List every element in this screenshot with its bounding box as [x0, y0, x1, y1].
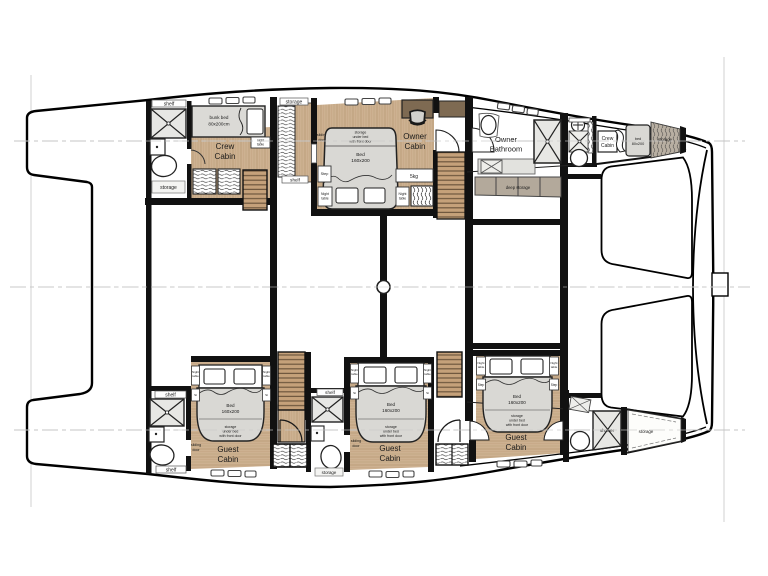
svg-text:Guest: Guest: [505, 433, 527, 442]
svg-text:Guest: Guest: [217, 445, 239, 454]
svg-text:table: table: [399, 197, 406, 201]
svg-text:Cabin: Cabin: [506, 443, 527, 452]
svg-text:shelf: shelf: [165, 393, 176, 399]
svg-text:door: door: [192, 448, 200, 452]
svg-text:Cabin: Cabin: [405, 142, 426, 151]
svg-text:Crew: Crew: [216, 142, 235, 151]
svg-text:Bathroom: Bathroom: [490, 145, 523, 154]
svg-text:160x200: 160x200: [508, 400, 526, 405]
svg-text:bunk bed: bunk bed: [210, 115, 229, 120]
svg-text:St: St: [426, 391, 429, 395]
svg-text:storage: storage: [322, 470, 337, 475]
svg-text:table: table: [192, 374, 199, 378]
svg-text:under bed: under bed: [509, 419, 525, 423]
svg-text:St: St: [194, 393, 197, 397]
svg-text:Bed: Bed: [513, 394, 522, 399]
svg-text:with front door: with front door: [219, 434, 242, 438]
svg-text:table: table: [263, 374, 270, 378]
svg-text:Step: Step: [551, 383, 558, 387]
svg-text:shelf: shelf: [166, 468, 177, 474]
svg-text:bed: bed: [635, 137, 641, 141]
svg-text:table: table: [478, 365, 485, 369]
svg-text:storage: storage: [160, 185, 177, 191]
svg-text:shelf: shelf: [290, 178, 300, 183]
svg-text:sliding: sliding: [351, 439, 361, 443]
svg-text:St: St: [265, 393, 268, 397]
svg-text:shelf: shelf: [325, 390, 335, 395]
svg-text:80x200: 80x200: [632, 142, 644, 146]
svg-text:Cabin: Cabin: [601, 143, 614, 149]
svg-text:sliding: sliding: [191, 443, 201, 447]
svg-text:Bed: Bed: [387, 402, 396, 407]
svg-text:St: St: [353, 391, 356, 395]
svg-text:80x200cm: 80x200cm: [208, 122, 229, 127]
svg-text:Night: Night: [399, 192, 407, 196]
svg-text:shelf: shelf: [164, 102, 175, 108]
svg-text:Step: Step: [321, 172, 329, 176]
svg-text:with front door: with front door: [506, 423, 529, 427]
svg-text:shower: shower: [600, 428, 615, 433]
svg-text:Cabin: Cabin: [218, 455, 239, 464]
svg-text:Step: Step: [478, 383, 485, 387]
svg-text:Cabin: Cabin: [380, 454, 401, 463]
svg-text:160x200: 160x200: [351, 158, 370, 164]
svg-text:Night: Night: [321, 192, 329, 196]
svg-text:with front door: with front door: [380, 434, 403, 438]
svg-text:Owner: Owner: [403, 132, 427, 141]
svg-text:Guest: Guest: [379, 444, 401, 453]
svg-text:table: table: [551, 365, 558, 369]
svg-text:Cabin: Cabin: [215, 152, 236, 161]
svg-text:deep storage: deep storage: [506, 185, 531, 190]
svg-text:table: table: [321, 197, 328, 201]
svg-text:table: table: [424, 372, 431, 376]
svg-text:storage: storage: [286, 100, 303, 106]
svg-text:under bed: under bed: [353, 135, 369, 139]
svg-text:Bed: Bed: [356, 152, 365, 158]
svg-text:table: table: [351, 372, 358, 376]
svg-text:door: door: [352, 444, 360, 448]
svg-text:storage: storage: [225, 425, 237, 429]
svg-text:5kg: 5kg: [410, 174, 418, 180]
svg-text:with front door: with front door: [349, 140, 372, 144]
svg-text:Bed: Bed: [226, 403, 235, 408]
svg-text:storage: storage: [511, 414, 523, 418]
svg-text:storage: storage: [385, 425, 397, 429]
svg-text:Owner: Owner: [495, 135, 518, 144]
svg-text:table: table: [257, 143, 264, 147]
svg-text:storage: storage: [355, 131, 367, 135]
svg-text:160x200: 160x200: [222, 409, 240, 414]
svg-text:160x200: 160x200: [382, 408, 400, 413]
